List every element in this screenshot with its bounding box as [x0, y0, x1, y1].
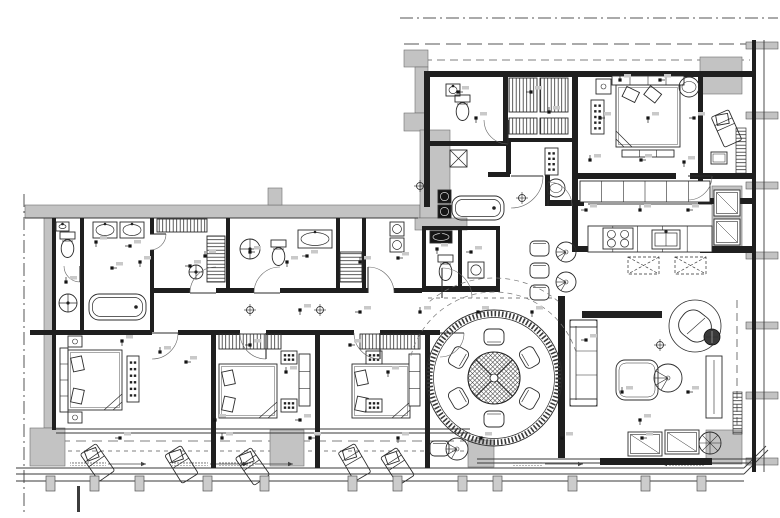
furniture-washer — [438, 205, 451, 218]
furniture-sofa — [570, 320, 597, 406]
furniture-cabinet — [628, 432, 662, 456]
furniture-dresser — [366, 399, 382, 412]
furniture-hang — [509, 118, 537, 134]
furniture-hang — [207, 236, 225, 282]
floor-plan-canvas — [0, 0, 780, 518]
furniture-dresser — [127, 356, 139, 402]
furniture-tables — [711, 152, 727, 164]
furniture-panel — [299, 354, 310, 406]
furniture-dresser — [281, 351, 297, 364]
furniture-washer — [438, 190, 451, 203]
furniture-hang — [540, 118, 568, 134]
furniture-hang — [157, 219, 207, 232]
furniture-tv — [582, 311, 662, 318]
furniture-panel — [612, 76, 684, 85]
furniture-hang — [360, 334, 420, 349]
furniture-hang — [509, 78, 537, 112]
furniture-nightstand — [68, 336, 82, 347]
furniture-washer — [390, 238, 404, 252]
furniture-cabinet — [665, 430, 699, 454]
furniture-showerc — [59, 294, 77, 312]
furniture-washer — [468, 262, 484, 278]
furniture-sidetabledark — [704, 329, 720, 345]
furniture-nightstand — [596, 79, 611, 94]
furniture-hob — [603, 228, 633, 249]
furniture-ksink — [652, 230, 680, 249]
furniture-panel — [60, 348, 68, 412]
furniture-dresser — [281, 399, 297, 412]
furniture-washer — [390, 222, 404, 236]
furniture-console — [706, 356, 722, 418]
furniture-counter — [580, 181, 710, 202]
furniture-chairr — [530, 285, 549, 300]
furniture-rtablex — [699, 432, 721, 454]
floor-plan — [0, 0, 780, 518]
furniture-panel — [409, 354, 420, 406]
furniture-chairr — [530, 263, 549, 278]
furniture-nightstand — [68, 412, 82, 423]
furniture-chairr — [530, 241, 549, 256]
furniture-dresser — [545, 148, 558, 175]
furniture-hang — [219, 334, 281, 349]
furniture-ctable — [616, 360, 658, 400]
furniture-cabinet — [714, 190, 740, 216]
furniture-sink — [430, 231, 452, 243]
furniture-hang — [340, 252, 362, 282]
furniture-dresser — [591, 100, 604, 134]
furniture-cabinet — [714, 219, 740, 245]
